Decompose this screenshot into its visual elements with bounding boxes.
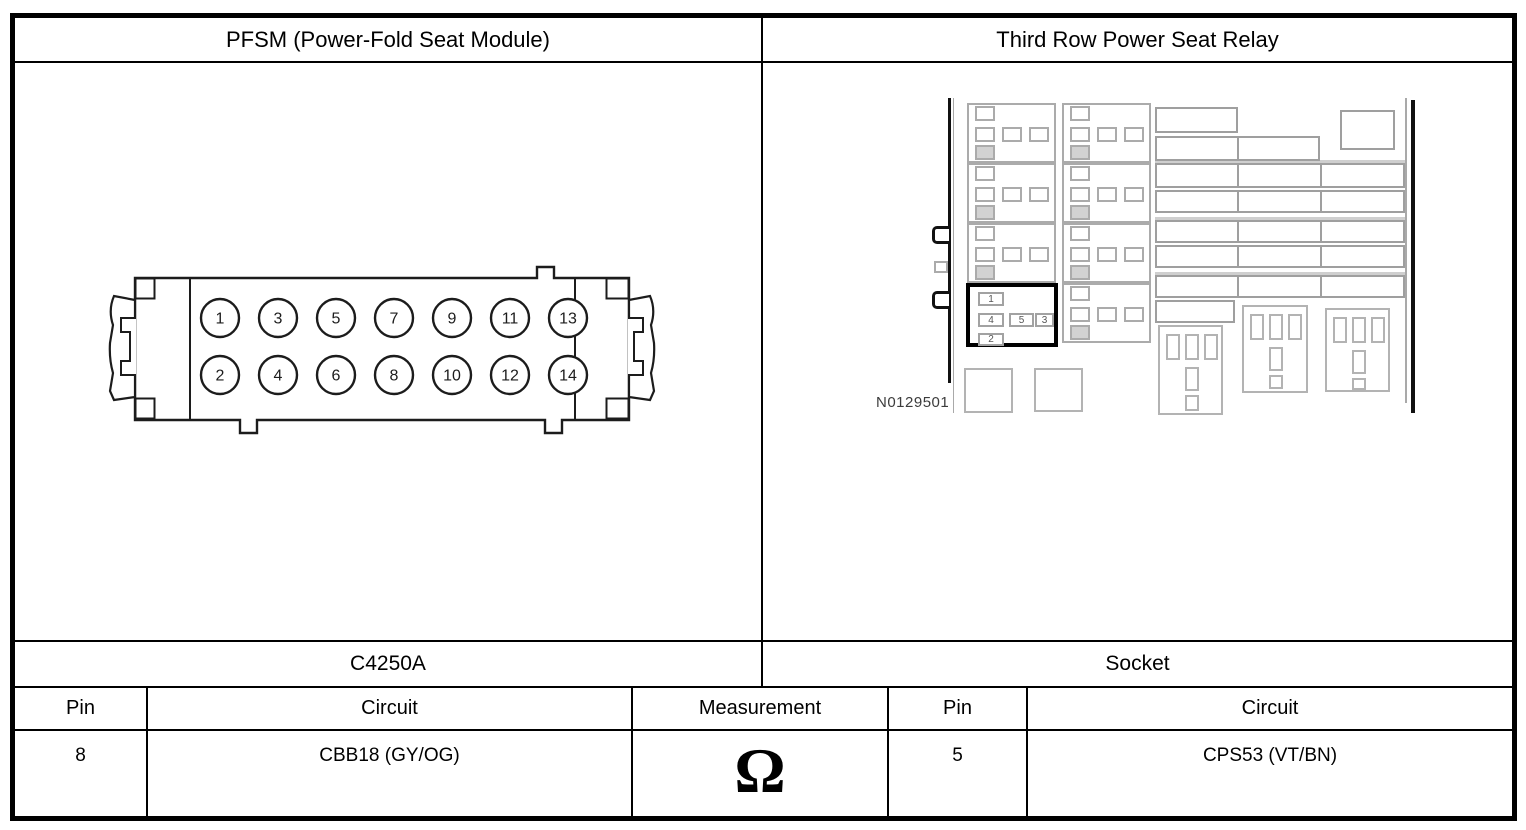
fuse-cavity <box>1070 166 1090 181</box>
ohm-measurement-symbol: Ω <box>633 731 887 816</box>
module-slot <box>1185 367 1199 391</box>
fuse-row-divider <box>1237 192 1239 211</box>
socket-pin-2: 2 <box>978 333 1004 346</box>
connector-pin-number: 13 <box>559 311 577 328</box>
connector-pin-number: 14 <box>559 368 577 385</box>
fuse-cavity <box>1124 127 1144 142</box>
left-connector-name: C4250A <box>15 642 761 686</box>
connector-body-outline <box>135 267 629 433</box>
left-pin-header: Pin <box>15 688 146 729</box>
fuse-cavity <box>1070 307 1090 322</box>
fuse-row-divider <box>1320 247 1322 266</box>
fuse-row-divider <box>1320 165 1322 186</box>
fuse-cavity <box>975 127 995 142</box>
connector-pin-number: 11 <box>502 311 519 328</box>
module-slot <box>1288 314 1302 340</box>
figure-reference: N0129501 <box>876 394 949 411</box>
socket-pin-1: 1 <box>978 292 1004 306</box>
relay-module <box>1242 305 1308 393</box>
fuse-cavity <box>1070 205 1090 220</box>
left-circuit-value: CBB18 (GY/OG) <box>148 731 631 816</box>
fuse-cavity <box>975 106 995 121</box>
module-slot <box>1269 314 1283 340</box>
module-slot <box>1352 378 1366 390</box>
fuse-block <box>1062 283 1151 343</box>
relay-module <box>1158 325 1223 415</box>
relay-cavity-square <box>1034 368 1083 412</box>
fuse-row-divider <box>1320 277 1322 296</box>
connector-pin-number: 3 <box>274 311 283 328</box>
fuse-cavity <box>1002 247 1022 262</box>
fuse-block <box>1062 103 1151 163</box>
fuse-cavity <box>1070 265 1090 280</box>
fuse-cavity <box>1124 247 1144 262</box>
module-slot <box>1333 317 1347 343</box>
fuse-cavity <box>1124 307 1144 322</box>
fuse-cavity <box>975 205 995 220</box>
module-slot <box>1166 334 1180 360</box>
module-slot <box>1250 314 1264 340</box>
fuse-block <box>1062 163 1151 223</box>
fuse-row-divider <box>1237 247 1239 266</box>
fuse-cavity <box>1029 247 1049 262</box>
connector-pin-number: 5 <box>332 311 341 328</box>
fuse-rect <box>1155 136 1320 161</box>
center-divider <box>761 18 763 688</box>
fuse-cavity <box>1029 127 1049 142</box>
fuse-block <box>967 223 1056 283</box>
fuse-row-divider <box>1320 222 1322 241</box>
connector-pin-number: 9 <box>448 311 457 328</box>
right-pin-value: 5 <box>889 731 1026 816</box>
fuse-row <box>1155 275 1405 298</box>
fuse-cavity <box>1070 106 1090 121</box>
left-pin-value: 8 <box>15 731 146 816</box>
left-panel-title: PFSM (Power-Fold Seat Module) <box>15 18 761 61</box>
fuse-cavity <box>975 145 995 160</box>
socket-pin-5: 5 <box>1009 313 1034 327</box>
fuse-block <box>967 103 1056 163</box>
rail-line-right-inner <box>1405 98 1407 403</box>
fuse-cavity <box>1097 187 1117 202</box>
right-circuit-value: CPS53 (VT/BN) <box>1028 731 1512 816</box>
fuse-cavity <box>1097 307 1117 322</box>
connector-pin-number: 6 <box>332 368 341 385</box>
fuse-cavity <box>1070 247 1090 262</box>
fuse-cavity <box>975 187 995 202</box>
rail-line-left-inner <box>953 98 954 413</box>
connector-pin-number: 12 <box>501 368 519 385</box>
relay-square <box>1340 110 1395 150</box>
fuse-cavity <box>1002 127 1022 142</box>
module-slot <box>1352 350 1366 374</box>
rail-clip-lower <box>932 291 949 309</box>
fuse-cavity <box>1070 127 1090 142</box>
fuse-cavity <box>1029 187 1049 202</box>
rail-tab <box>934 261 948 273</box>
connector-pin-number: 1 <box>216 311 225 328</box>
socket-pin-4: 4 <box>978 313 1004 327</box>
module-slot <box>1185 395 1199 411</box>
fuse-row-divider <box>1237 277 1239 296</box>
fuse-cavity <box>1070 187 1090 202</box>
fuse-row-divider <box>1237 138 1239 159</box>
fuse-cavity <box>1097 127 1117 142</box>
right-circuit-header: Circuit <box>1028 688 1512 729</box>
third-row-power-seat-relay-socket: 1 4 5 3 2 <box>966 283 1058 347</box>
fuse-row <box>1155 220 1405 243</box>
fuse-cavity <box>975 226 995 241</box>
module-slot <box>1204 334 1218 360</box>
right-connector-name: Socket <box>763 642 1512 686</box>
fuse-row <box>1155 163 1405 188</box>
connector-pin-number: 8 <box>390 368 399 385</box>
fuse-cavity <box>1070 226 1090 241</box>
right-panel-title: Third Row Power Seat Relay <box>763 18 1512 61</box>
relay-cavity-square <box>964 368 1013 413</box>
module-slot <box>1371 317 1385 343</box>
fuse-row <box>1155 245 1405 268</box>
rail-line-right <box>1411 100 1415 413</box>
fuse-row-divider <box>1237 222 1239 241</box>
rail-clip-upper <box>932 226 949 244</box>
fuse-cavity <box>975 247 995 262</box>
fuse-cavity <box>1070 286 1090 301</box>
fuse-cavity <box>1097 247 1117 262</box>
left-circuit-header: Circuit <box>148 688 631 729</box>
pinpoint-test-figure: PFSM (Power-Fold Seat Module) Third Row … <box>0 0 1526 830</box>
fuse-cavity <box>1002 187 1022 202</box>
module-slot <box>1352 317 1366 343</box>
connector-pin-number: 7 <box>390 311 399 328</box>
fuse-block <box>967 163 1056 223</box>
fuse-cavity <box>1070 145 1090 160</box>
fuse-rect <box>1155 107 1238 133</box>
right-pin-header: Pin <box>889 688 1026 729</box>
fuse-block <box>1062 223 1151 283</box>
fuse-cavity <box>975 265 995 280</box>
fuse-row <box>1155 190 1405 213</box>
connector-pin-number: 4 <box>274 368 283 385</box>
module-slot <box>1269 347 1283 371</box>
fuse-cavity <box>1124 187 1144 202</box>
socket-pin-3: 3 <box>1035 313 1054 327</box>
relay-module <box>1325 308 1390 392</box>
module-slot <box>1269 375 1283 389</box>
connector-pin-number: 10 <box>443 368 461 385</box>
pfsm-connector-diagram: 135791113 2468101214 <box>100 248 660 443</box>
fuse-cavity <box>975 166 995 181</box>
fuse-row <box>1155 300 1235 323</box>
fuse-row-divider <box>1237 165 1239 186</box>
connector-pin-number: 2 <box>216 368 225 385</box>
divider-below-titles <box>15 61 1512 63</box>
measurement-header: Measurement <box>633 688 887 729</box>
fuse-cavity <box>1070 325 1090 340</box>
fuse-row-divider <box>1320 192 1322 211</box>
module-slot <box>1185 334 1199 360</box>
relay-box-diagram: 1 4 5 3 2 N0129501 <box>870 90 1450 430</box>
